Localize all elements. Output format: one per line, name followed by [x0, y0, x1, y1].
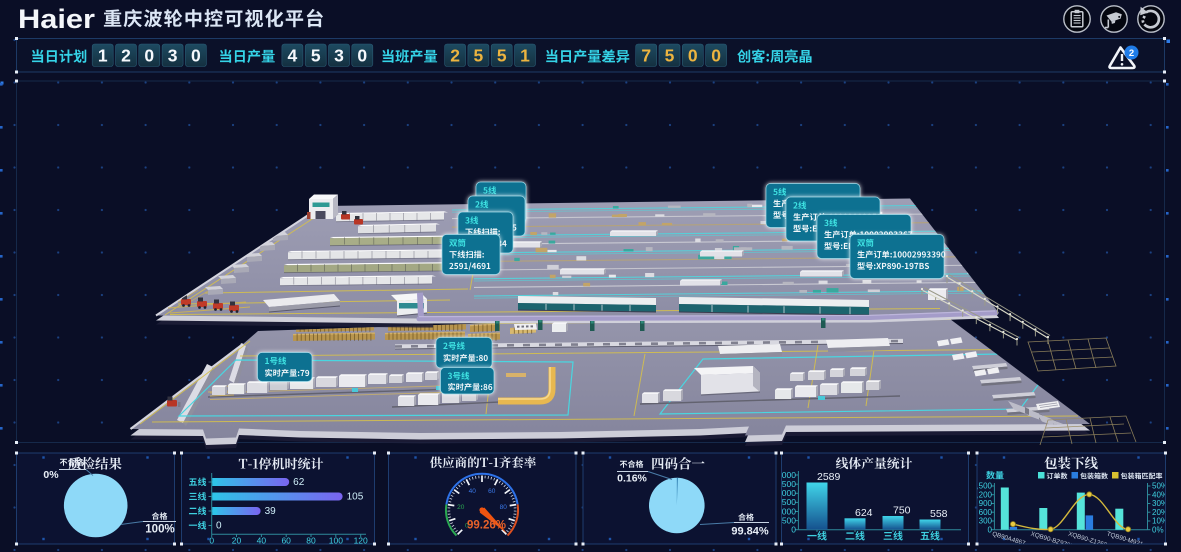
- svg-text:0: 0: [791, 525, 796, 535]
- svg-text:100%: 100%: [145, 524, 174, 536]
- svg-text:80: 80: [500, 504, 508, 511]
- svg-text:300: 300: [979, 517, 993, 526]
- svg-text:80: 80: [306, 536, 316, 546]
- svg-text:120: 120: [354, 536, 368, 546]
- svg-text:2: 2: [1129, 48, 1134, 59]
- svg-text:624: 624: [855, 507, 873, 519]
- svg-text:62: 62: [293, 477, 305, 488]
- svg-text:60: 60: [281, 536, 291, 546]
- svg-text:3: 3: [334, 46, 344, 66]
- svg-text:40: 40: [257, 536, 267, 546]
- svg-text:5: 5: [497, 46, 507, 66]
- svg-text:2: 2: [121, 46, 131, 66]
- svg-text:39: 39: [265, 506, 277, 517]
- svg-text:0: 0: [688, 46, 698, 66]
- svg-text:2589: 2589: [817, 471, 841, 483]
- svg-text:0: 0: [209, 536, 214, 546]
- svg-text:600: 600: [979, 508, 993, 517]
- svg-text:20: 20: [232, 536, 242, 546]
- svg-text:20: 20: [457, 504, 465, 511]
- svg-text:100: 100: [329, 536, 343, 546]
- svg-text:0.16%: 0.16%: [617, 473, 647, 485]
- svg-text:1: 1: [98, 46, 108, 66]
- svg-text:7: 7: [641, 46, 651, 66]
- svg-text:4: 4: [288, 46, 298, 66]
- svg-text:Haier: Haier: [18, 4, 95, 34]
- svg-text:3: 3: [168, 46, 178, 66]
- svg-text:1: 1: [520, 46, 530, 66]
- svg-text:0%: 0%: [43, 469, 59, 481]
- svg-text:2: 2: [450, 46, 460, 66]
- svg-text:5: 5: [665, 46, 675, 66]
- svg-text:5: 5: [474, 46, 484, 66]
- svg-text:0: 0: [144, 46, 154, 66]
- svg-text:0: 0: [357, 46, 367, 66]
- svg-text:60: 60: [488, 488, 496, 495]
- svg-text:105: 105: [347, 492, 364, 503]
- svg-text:0: 0: [711, 46, 721, 66]
- svg-text:99.84%: 99.84%: [731, 526, 769, 538]
- svg-text:0%: 0%: [1152, 525, 1164, 534]
- svg-text:500: 500: [782, 515, 796, 525]
- svg-text:99.26%: 99.26%: [467, 520, 506, 532]
- svg-text:0: 0: [216, 521, 222, 532]
- svg-text:558: 558: [930, 508, 948, 520]
- svg-text:750: 750: [893, 505, 911, 517]
- svg-text:0: 0: [191, 46, 201, 66]
- svg-text:5: 5: [311, 46, 321, 66]
- svg-text:900: 900: [979, 499, 993, 508]
- svg-text:40: 40: [469, 488, 477, 495]
